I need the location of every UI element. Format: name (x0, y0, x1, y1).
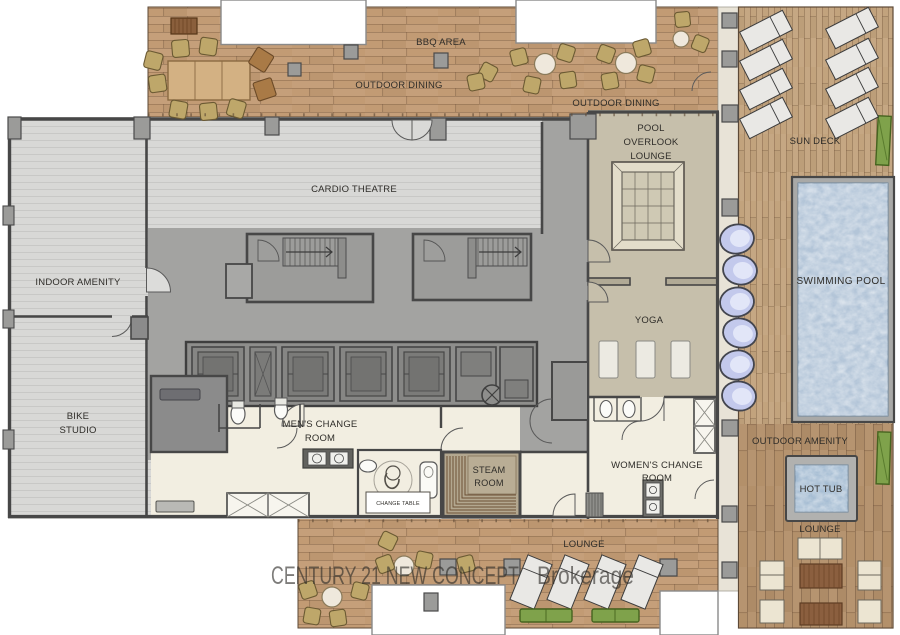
svg-text:SUN DECK: SUN DECK (790, 136, 841, 147)
svg-text:BIKE: BIKE (67, 411, 89, 422)
svg-text:OUTDOOR DINING: OUTDOOR DINING (572, 98, 659, 109)
svg-text:LOUNGE: LOUNGE (799, 524, 840, 535)
svg-text:OVERLOOK: OVERLOOK (624, 137, 679, 148)
svg-text:LOUNGE: LOUNGE (630, 151, 671, 162)
svg-text:YOGA: YOGA (635, 315, 664, 326)
svg-text:HOT TUB: HOT TUB (800, 484, 843, 495)
svg-text:MEN'S CHANGE: MEN'S CHANGE (283, 419, 358, 430)
svg-text:STUDIO: STUDIO (59, 425, 96, 436)
svg-text:POOL: POOL (637, 123, 664, 134)
svg-text:ROOM: ROOM (474, 478, 503, 488)
svg-text:OUTDOOR AMENITY: OUTDOOR AMENITY (752, 436, 848, 447)
svg-text:OUTDOOR DINING: OUTDOOR DINING (355, 80, 442, 91)
svg-text:SWIMMING POOL: SWIMMING POOL (796, 276, 885, 287)
svg-text:INDOOR AMENITY: INDOOR AMENITY (35, 277, 121, 288)
svg-text:ROOM: ROOM (305, 433, 335, 444)
svg-text:STEAM: STEAM (473, 465, 506, 475)
svg-text:CENTURY 21 NEW CONCEPT: CENTURY 21 NEW CONCEPT (271, 562, 519, 590)
svg-text:ROOM: ROOM (642, 473, 672, 484)
svg-text:CHANGE TABLE: CHANGE TABLE (376, 501, 420, 507)
svg-text:CARDIO THEATRE: CARDIO THEATRE (311, 184, 397, 195)
svg-text:BBQ AREA: BBQ AREA (416, 37, 466, 48)
svg-text:WOMEN'S CHANGE: WOMEN'S CHANGE (611, 460, 703, 471)
svg-text:LOUNGE: LOUNGE (563, 539, 604, 550)
svg-text:Brokerage: Brokerage (537, 562, 634, 590)
